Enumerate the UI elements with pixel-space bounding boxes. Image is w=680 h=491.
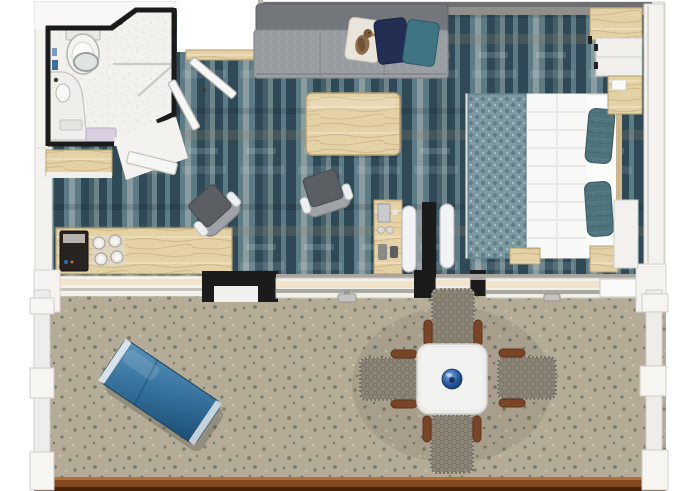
- minibar-console: [374, 200, 402, 274]
- coffee-table: [306, 93, 400, 158]
- notepad: [612, 80, 626, 90]
- cushion-teal: [402, 19, 440, 67]
- faucet: [54, 78, 58, 82]
- towel-stack: [60, 120, 82, 130]
- dining-chair-bottom: [423, 415, 481, 473]
- floor-plan-canvas: [0, 0, 680, 491]
- floor-plan-image: [0, 0, 680, 491]
- dining-chair-top: [424, 289, 482, 347]
- door-handle-2: [544, 294, 560, 301]
- sofa: [254, 4, 448, 78]
- hinge: [588, 36, 592, 44]
- toiletry-bottle: [52, 48, 57, 56]
- right-wall: [644, 4, 664, 270]
- hinge-3: [594, 62, 598, 69]
- decor-bowl: [442, 369, 462, 389]
- door-handle: [338, 294, 356, 302]
- dining-chair-right: [498, 349, 556, 407]
- towels: [86, 128, 116, 142]
- partition-door-left: [402, 206, 416, 272]
- dining-table: [417, 344, 487, 414]
- toiletry-bottle-2: [52, 60, 58, 70]
- entry-corridor: [177, 0, 263, 60]
- left-window: [58, 276, 204, 296]
- glass-set: [92, 235, 126, 266]
- bed-runner: [468, 94, 526, 258]
- wall-pillar: [202, 271, 278, 302]
- round-mirror: [74, 53, 98, 71]
- closet-shelf: [46, 150, 112, 178]
- bedside-cabinet: [614, 200, 638, 268]
- wardrobe: [588, 8, 642, 76]
- dining-chair-left: [360, 350, 418, 408]
- door-stop: [202, 88, 206, 92]
- bed-pillow-2: [584, 181, 614, 237]
- luggage-bench: [510, 248, 540, 264]
- hinge-2: [594, 44, 598, 51]
- bed-pillow: [585, 108, 616, 164]
- partition-door-right: [440, 204, 454, 268]
- double-bed: [466, 94, 622, 258]
- door-leaf-panel: [600, 279, 638, 297]
- patio-door-living: [276, 274, 422, 302]
- coffee-machine: [60, 231, 88, 271]
